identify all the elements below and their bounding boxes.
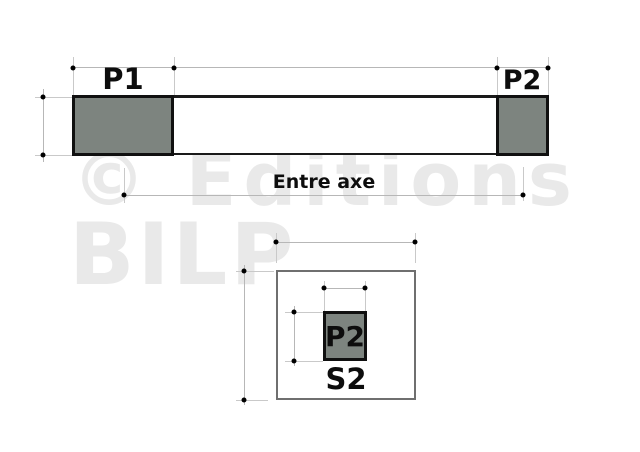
post-p1-label: P1	[72, 64, 174, 96]
section-label: S2	[306, 364, 386, 396]
dim-dot	[41, 95, 46, 100]
dim-dot	[292, 310, 297, 315]
section-post-label: P2	[325, 320, 365, 353]
dim-line-post-height	[294, 306, 295, 366]
dim-dot	[322, 286, 327, 291]
dim-dot	[122, 193, 127, 198]
dim-dot	[521, 193, 526, 198]
dim-dot	[292, 359, 297, 364]
post-p1-block	[72, 95, 174, 156]
dim-dot	[242, 269, 247, 274]
technical-drawing: © Editions BILP P1 P2 Entre axe	[0, 0, 640, 452]
ext-line	[124, 168, 125, 203]
dim-line-entre-axe	[124, 195, 523, 196]
dim-line-section-width	[276, 242, 415, 243]
dim-dot	[363, 286, 368, 291]
watermark-line2: BILP	[69, 212, 296, 298]
dim-line-section-height	[244, 265, 245, 405]
ext-line	[276, 233, 277, 263]
post-p2-label: P2	[494, 66, 550, 96]
dim-dot	[274, 240, 279, 245]
dim-line-left-height	[43, 89, 44, 162]
section-post-block: P2	[323, 311, 367, 361]
entre-axe-label: Entre axe	[253, 172, 395, 193]
dim-dot	[41, 153, 46, 158]
post-p2-block	[496, 95, 549, 156]
dim-dot	[242, 398, 247, 403]
dim-dot	[413, 240, 418, 245]
dim-line-post-width	[324, 288, 365, 289]
ext-line	[415, 233, 416, 263]
